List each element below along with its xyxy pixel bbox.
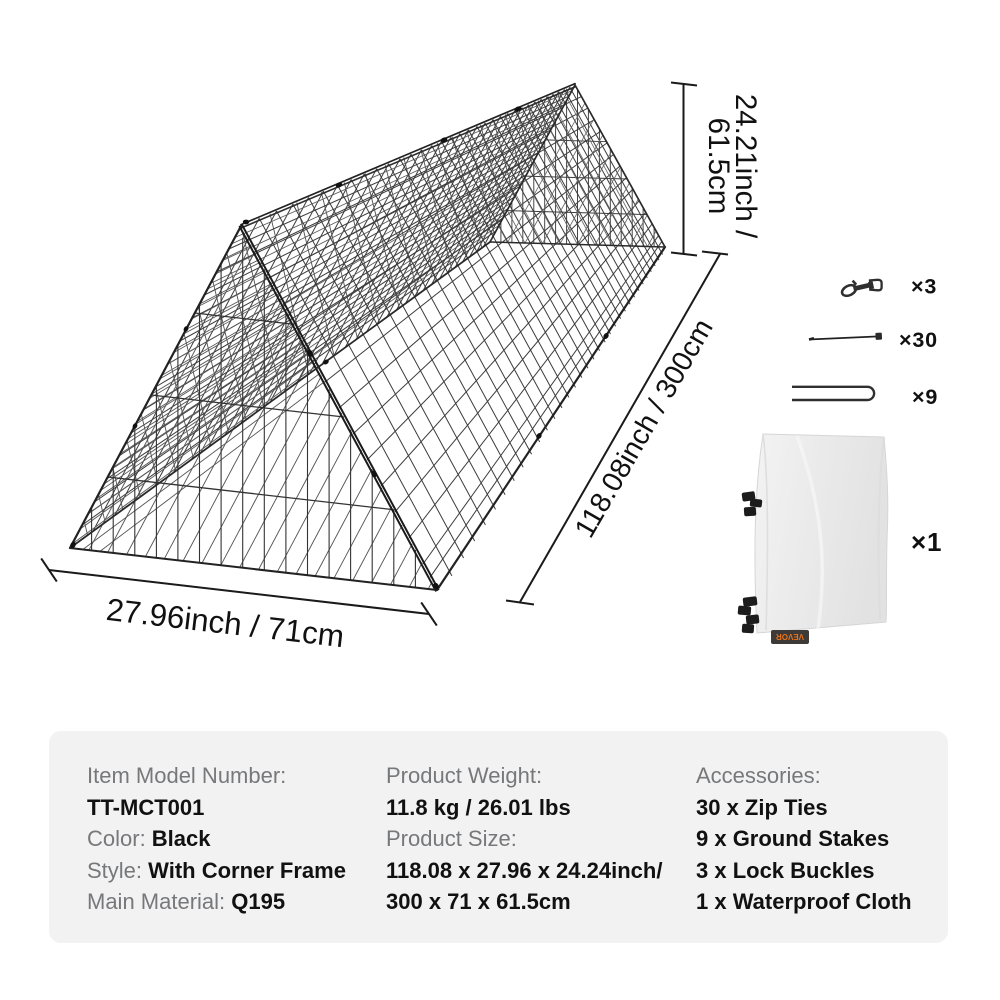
svg-text:×30: ×30 <box>899 328 938 352</box>
svg-text:61.5cm: 61.5cm <box>702 118 735 215</box>
svg-text:×9: ×9 <box>912 385 938 409</box>
svg-text:27.96inch / 71cm: 27.96inch / 71cm <box>104 592 346 654</box>
svg-text:×3: ×3 <box>911 275 937 299</box>
svg-text:×1: ×1 <box>911 527 942 557</box>
svg-text:118.08inch / 300cm: 118.08inch / 300cm <box>569 314 720 544</box>
svg-text:VEVOR: VEVOR <box>776 632 804 641</box>
